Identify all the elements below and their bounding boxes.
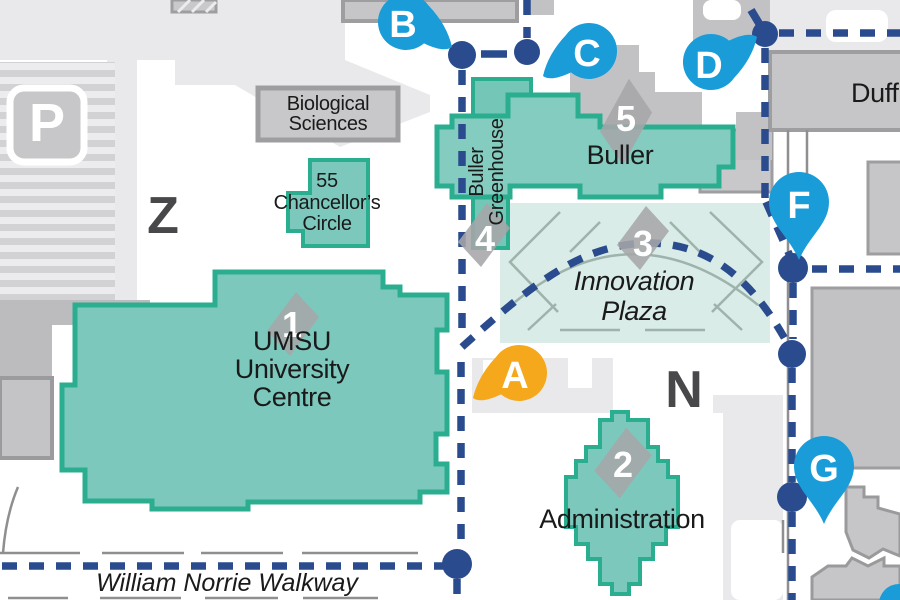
buller-label: Buller xyxy=(587,140,654,170)
innovation-plaza-label-line2: Plaza xyxy=(601,296,667,326)
duff-label: Duff xyxy=(851,78,899,108)
pin-b-letter: B xyxy=(389,4,416,46)
pin-a-letter: A xyxy=(501,355,528,397)
walkway-label: William Norrie Walkway xyxy=(96,569,359,597)
marker-5-number: 5 xyxy=(616,98,636,139)
chancellors-circle-label-line1: 55 xyxy=(316,170,338,192)
innovation-plaza-label-line1: Innovation xyxy=(574,266,695,296)
campus-map-canvas: P xyxy=(0,0,900,600)
zone-letter-n: N xyxy=(665,361,703,419)
pin-a[interactable]: A xyxy=(473,345,547,401)
buller-greenhouse-label-line2: Greenhouse xyxy=(486,118,508,225)
hatched-building xyxy=(172,0,216,12)
biological-sciences-label-line2: Sciences xyxy=(289,113,368,135)
marker-3-number: 3 xyxy=(633,223,653,264)
pin-g-letter: G xyxy=(809,448,839,490)
pin-f[interactable]: F xyxy=(769,172,829,260)
parking-icon: P xyxy=(10,88,84,162)
umsu-label-line3: Centre xyxy=(253,382,332,412)
pin-f-letter: F xyxy=(787,185,810,227)
buller-greenhouse-label-line1: Buller xyxy=(466,147,488,197)
marker-2-number: 2 xyxy=(613,444,633,485)
biological-sciences-label-line1: Biological xyxy=(287,93,370,115)
umsu-label-line1: UMSU xyxy=(253,326,331,356)
campus-map: P xyxy=(0,0,900,600)
administration-label: Administration xyxy=(539,504,704,534)
pin-d-letter: D xyxy=(695,45,722,87)
chancellors-circle-label-line2: Chancellor’s xyxy=(274,192,381,214)
umsu-label-line2: University xyxy=(235,354,350,384)
zone-letter-z: Z xyxy=(147,187,179,245)
parking-letter: P xyxy=(29,93,65,153)
pin-d[interactable]: D xyxy=(683,34,757,90)
pin-c[interactable]: C xyxy=(543,23,617,79)
pin-c-letter: C xyxy=(573,33,600,75)
chancellors-circle-label-line3: Circle xyxy=(302,213,351,235)
